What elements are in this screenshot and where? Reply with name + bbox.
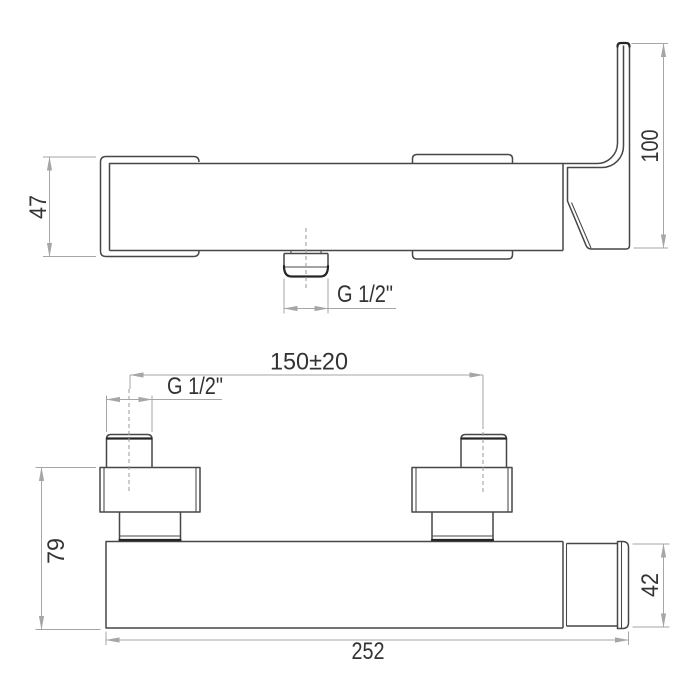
front-outlet-connection [284, 228, 328, 288]
shower-mixer-dimension-drawing: 47 100 G 1/2" [0, 0, 700, 700]
dim-79-label: 79 [43, 538, 70, 564]
top-lever-end-cap [618, 542, 629, 629]
dim-inlet-thread: G 1/2" [107, 373, 224, 432]
right-flange-inner-edges [416, 468, 508, 513]
left-flange [100, 468, 200, 513]
inlet-connection-left [100, 389, 200, 541]
dim-inletthread-label: G 1/2" [167, 373, 223, 400]
front-lever-wedge-line [572, 203, 592, 249]
dim-252-label: 252 [352, 638, 385, 665]
dim-100-label: 100 [637, 130, 664, 163]
dim-outlet-thread: G 1/2" [284, 279, 396, 314]
front-body-and-lever-outline [110, 43, 630, 251]
dim-overall-width: 252 [106, 632, 629, 666]
front-escutcheon-outline [101, 157, 200, 257]
left-flange-inner-edges [104, 468, 196, 513]
front-view: 47 100 G 1/2" [25, 43, 668, 314]
dim-47-label: 47 [25, 195, 52, 219]
technical-drawing-page: 47 100 G 1/2" [0, 0, 700, 700]
dim-outlet-label: G 1/2" [337, 281, 393, 308]
top-end-section-edges [567, 544, 618, 627]
inlet-connection-right [412, 425, 512, 541]
dim-150-label: 150±20 [270, 349, 348, 376]
front-top-tab [413, 155, 513, 164]
dim-handle-height: 100 [632, 44, 669, 249]
dim-42-label: 42 [637, 573, 664, 597]
dim-body-height: 42 [633, 544, 670, 627]
dim-depth: 79 [36, 468, 101, 630]
right-flange [412, 468, 512, 513]
top-view: 150±20 G 1/2" 79 42 252 [36, 349, 670, 666]
top-body-outline [106, 542, 563, 629]
front-bottom-tab [413, 251, 513, 260]
dim-escutcheon-height: 47 [25, 157, 96, 257]
